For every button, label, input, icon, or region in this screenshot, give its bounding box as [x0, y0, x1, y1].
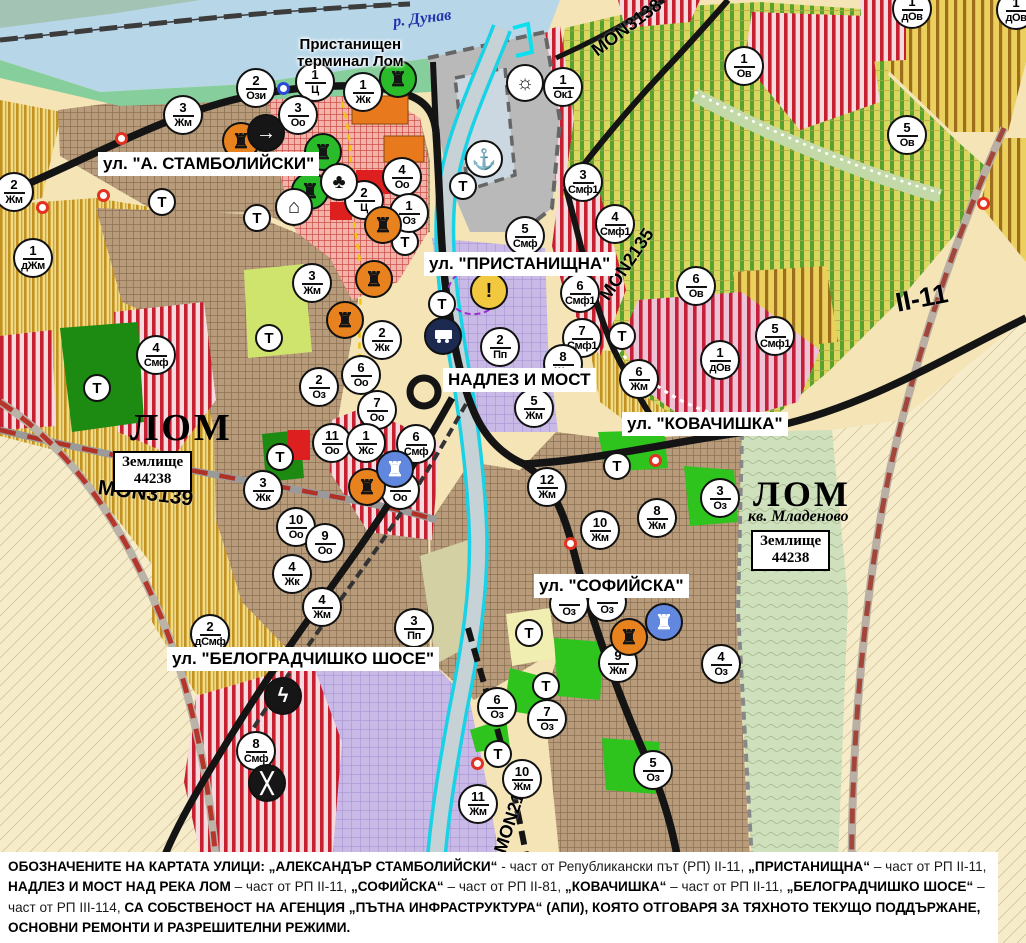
ownership-note: ОБОЗНАЧЕНИТЕ НА КАРТАТА УЛИЦИ: „АЛЕКСАНД…	[0, 852, 998, 943]
zone-marker-1-дЖм: 1дЖм	[13, 238, 53, 278]
red-point-marker	[36, 201, 49, 214]
monument-icon: ♜	[376, 450, 414, 488]
note-segment: – част от РП II-11,	[666, 879, 786, 894]
note-segment: ОБОЗНАЧЕНИТЕ НА КАРТАТА УЛИЦИ: „АЛЕКСАНД…	[8, 859, 497, 874]
zone-marker-1-Ок1: 1Ок1	[543, 67, 583, 107]
zone-marker-7-Оз: 7Оз	[527, 699, 567, 739]
street-label: ул. "СОФИЙСКА"	[534, 574, 689, 598]
zone-marker-8-Жм: 8Жм	[637, 498, 677, 538]
transport-stop-marker: Т	[532, 672, 560, 700]
street-label: ул. "КОВАЧИШКА"	[622, 412, 788, 436]
note-segment: - част от Републикански път (РП) II-11,	[497, 859, 748, 874]
zone-marker-1-Ов: 1Ов	[724, 46, 764, 86]
zone-marker-6-Ов: 6Ов	[676, 266, 716, 306]
monument-icon: ♜	[326, 301, 364, 339]
direction-arrow-icon: →	[247, 114, 285, 152]
transport-stop-marker: Т	[515, 619, 543, 647]
zbox-label: Землище 44238	[113, 451, 192, 492]
monument-icon: ♜	[355, 260, 393, 298]
blue-point-marker	[277, 82, 290, 95]
zone-marker-5-Смф1: 5Смф1	[755, 316, 795, 356]
anchor-port-icon: ⚓	[465, 140, 503, 178]
red-point-marker	[115, 132, 128, 145]
street-label: ул. "ПРИСТАНИЩНА"	[424, 252, 615, 276]
zone-marker-1-дОв: 1дОв	[700, 340, 740, 380]
zbox-label: Землище 44238	[751, 530, 830, 571]
transport-stop-marker: Т	[608, 322, 636, 350]
rail-crossing-icon: ╳	[248, 764, 286, 802]
note-segment: – част от РП II-11,	[870, 859, 986, 874]
zone-marker-3-Пп: 3Пп	[394, 608, 434, 648]
note-segment: „СОФИЙСКА“	[351, 879, 444, 894]
monument-icon: ♜	[645, 603, 683, 641]
zone-marker-4-Смф1: 4Смф1	[595, 204, 635, 244]
note-segment: – част от РП II-81,	[444, 879, 565, 894]
note-segment: „БЕЛОГРАДЧИШКО ШОСЕ“	[787, 879, 974, 894]
note-segment: „КОВАЧИШКА“	[565, 879, 666, 894]
truck-terminal-icon	[424, 317, 462, 355]
zone-marker-11-Жм: 11Жм	[458, 784, 498, 824]
street-label: ул. "БЕЛОГРАДЧИШКО ШОСЕ"	[167, 647, 439, 671]
zone-marker-6-Оз: 6Оз	[477, 687, 517, 727]
zone-marker-6-Оо: 6Оо	[341, 355, 381, 395]
zone-marker-3-Жк: 3Жк	[243, 470, 283, 510]
street-label: ул. "А. СТАМБОЛИЙСКИ"	[98, 152, 319, 176]
transport-stop-marker: Т	[255, 324, 283, 352]
zone-marker-1-Жк: 1Жк	[343, 72, 383, 112]
transport-stop-marker: Т	[243, 204, 271, 232]
zone-marker-3-Оз: 3Оз	[700, 478, 740, 518]
red-point-marker	[649, 454, 662, 467]
transport-stop-marker: Т	[428, 290, 456, 318]
zone-marker-10-Жм: 10Жм	[502, 759, 542, 799]
lom-label: ЛОМ	[130, 406, 233, 450]
shelter-icon: ⌂	[275, 188, 313, 226]
note-segment: „ПРИСТАНИЩНА“	[748, 859, 870, 874]
zone-marker-10-Жм: 10Жм	[580, 510, 620, 550]
zone-marker-3-Жм: 3Жм	[292, 263, 332, 303]
zone-marker-4-Жм: 4Жм	[302, 587, 342, 627]
transport-stop-marker: Т	[148, 188, 176, 216]
monument-icon: ♜	[364, 206, 402, 244]
zone-marker-4-Смф: 4Смф	[136, 335, 176, 375]
lomsub-label: кв. Младеново	[748, 508, 849, 526]
transport-stop-marker: Т	[83, 374, 111, 402]
zone-marker-6-Смф1: 6Смф1	[560, 273, 600, 313]
red-point-marker	[977, 197, 990, 210]
zone-marker-4-Оз: 4Оз	[701, 644, 741, 684]
zone-marker-2-Ози: 2Ози	[236, 68, 276, 108]
zone-marker-2-Оз: 2Оз	[299, 367, 339, 407]
zone-marker-12-Жм: 12Жм	[527, 467, 567, 507]
zone-marker-6-Жм: 6Жм	[619, 359, 659, 399]
red-point-marker	[564, 537, 577, 550]
note-segment: – част от РП II-11,	[231, 879, 351, 894]
note-segment: СА СОБСТВЕНОСТ НА АГЕНЦИЯ „ПЪТНА ИНФРАСТ…	[8, 900, 980, 935]
map-canvas[interactable]: ОБОЗНАЧЕНИТЕ НА КАРТАТА УЛИЦИ: „АЛЕКСАНД…	[0, 0, 1026, 943]
zone-marker-5-Смф: 5Смф	[505, 216, 545, 256]
zone-marker-4-Оо: 4Оо	[382, 157, 422, 197]
sun-icon: ☼	[506, 64, 544, 102]
zone-marker-3-Жм: 3Жм	[163, 95, 203, 135]
note-segment: НАДЛЕЗ И МОСТ НАД РЕКА ЛОМ	[8, 879, 231, 894]
terminal-label: Пристанищен терминал Лом	[297, 36, 404, 71]
zone-marker-3-Смф1: 3Смф1	[563, 162, 603, 202]
street-label: НАДЛЕЗ И МОСТ	[443, 368, 596, 392]
red-point-marker	[97, 189, 110, 202]
monument-icon: ♜	[610, 618, 648, 656]
transport-stop-marker: Т	[449, 172, 477, 200]
power-station-icon: ϟ	[264, 677, 302, 715]
transport-stop-marker: Т	[266, 443, 294, 471]
clover-icon: ♣	[320, 163, 358, 201]
zone-marker-9-Оо: 9Оо	[305, 523, 345, 563]
warning-icon: !	[470, 272, 508, 310]
red-point-marker	[471, 757, 484, 770]
transport-stop-marker: Т	[603, 452, 631, 480]
zone-marker-2-Жк: 2Жк	[362, 320, 402, 360]
zone-marker-5-Ов: 5Ов	[887, 115, 927, 155]
zone-marker-5-Жм: 5Жм	[514, 388, 554, 428]
zone-marker-4-Жк: 4Жк	[272, 554, 312, 594]
zone-marker-2-Пп: 2Пп	[480, 327, 520, 367]
zone-marker-5-Оз: 5Оз	[633, 750, 673, 790]
